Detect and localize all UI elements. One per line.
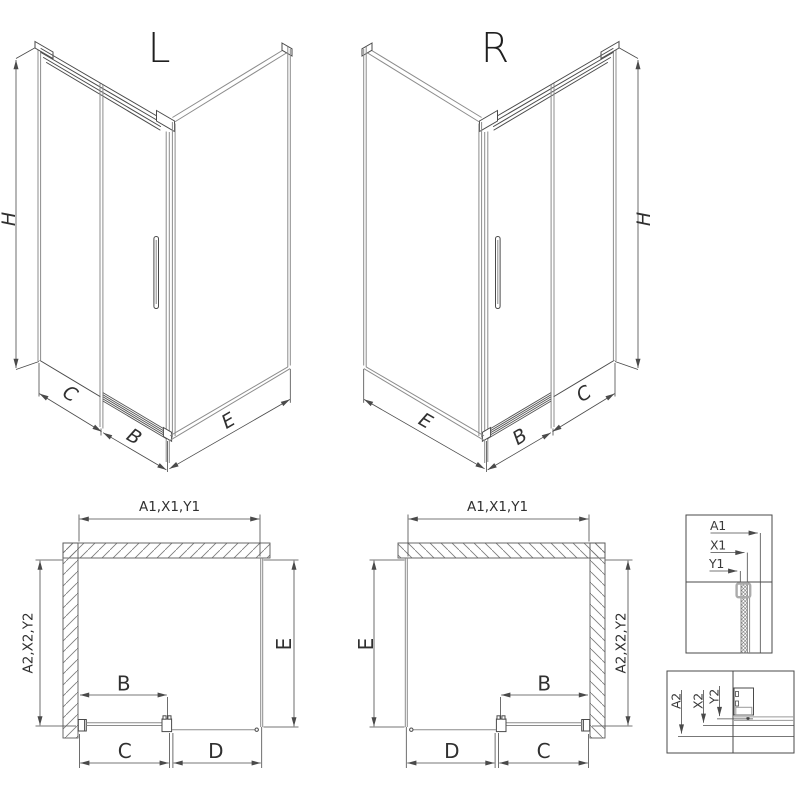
plan-right-dim-wall-side: A2,X2,Y2 xyxy=(614,612,630,673)
detail-bottom-dim-a2: A2 xyxy=(669,693,684,709)
detail-top-frame xyxy=(686,515,772,653)
plan-right-dim-d: D xyxy=(444,739,459,763)
plan-view-left: A1,X1,Y1 A2,X2,Y2 E B C D xyxy=(21,499,299,768)
plan-left-dim-d: D xyxy=(208,739,223,763)
detail-top-dim-a1: A1 xyxy=(710,518,726,533)
detail-top-dim-x1: X1 xyxy=(710,538,726,553)
iso-left-dim-c: C xyxy=(59,381,82,407)
iso-left-linework xyxy=(16,42,292,473)
plan-right-dim-c: C xyxy=(537,739,551,763)
iso-left-dim-h: H xyxy=(0,212,20,226)
iso-right-linework xyxy=(362,42,638,473)
detail-bottom-frame xyxy=(667,671,794,753)
detail-top-dim-y1: Y1 xyxy=(708,556,724,571)
iso-left-title: L xyxy=(148,24,171,72)
detail-bottom-dim-x2: X2 xyxy=(691,693,706,709)
plan-left-dim-e: E xyxy=(272,638,296,651)
plan-view-right: A1,X1,Y1 A2,X2,Y2 E B D C xyxy=(354,499,633,768)
iso-right-dim-e: E xyxy=(415,408,436,433)
plan-left-linework xyxy=(36,515,299,769)
iso-right-title: R xyxy=(481,24,510,72)
detail-view-top: A1 X1 Y1 xyxy=(686,515,772,653)
detail-view-bottom: A2 X2 Y2 xyxy=(667,671,794,753)
plan-right-dim-top: A1,X1,Y1 xyxy=(467,499,528,515)
iso-right-dim-c: C xyxy=(573,381,596,407)
detail-bottom-dim-y2: Y2 xyxy=(707,689,722,705)
iso-view-right: R H C B E xyxy=(362,24,655,472)
plan-right-linework xyxy=(370,515,633,769)
plan-left-dim-wall-side: A2,X2,Y2 xyxy=(21,612,37,673)
iso-view-left: L H C B E xyxy=(0,24,292,472)
plan-right-dim-b: B xyxy=(537,672,551,696)
iso-right-dim-h: H xyxy=(633,212,655,226)
plan-left-dim-top: A1,X1,Y1 xyxy=(139,499,200,515)
plan-left-dim-c: C xyxy=(118,739,132,763)
plan-left-dim-b: B xyxy=(117,672,131,696)
diagram-canvas: L H C B E R H C B E A1,X1,Y1 A2,X2,Y2 E … xyxy=(0,0,800,800)
iso-left-dim-e: E xyxy=(218,408,239,433)
plan-right-dim-e: E xyxy=(354,638,378,651)
shower-enclosure-technical-drawing: L H C B E R H C B E A1,X1,Y1 A2,X2,Y2 E … xyxy=(0,0,800,800)
